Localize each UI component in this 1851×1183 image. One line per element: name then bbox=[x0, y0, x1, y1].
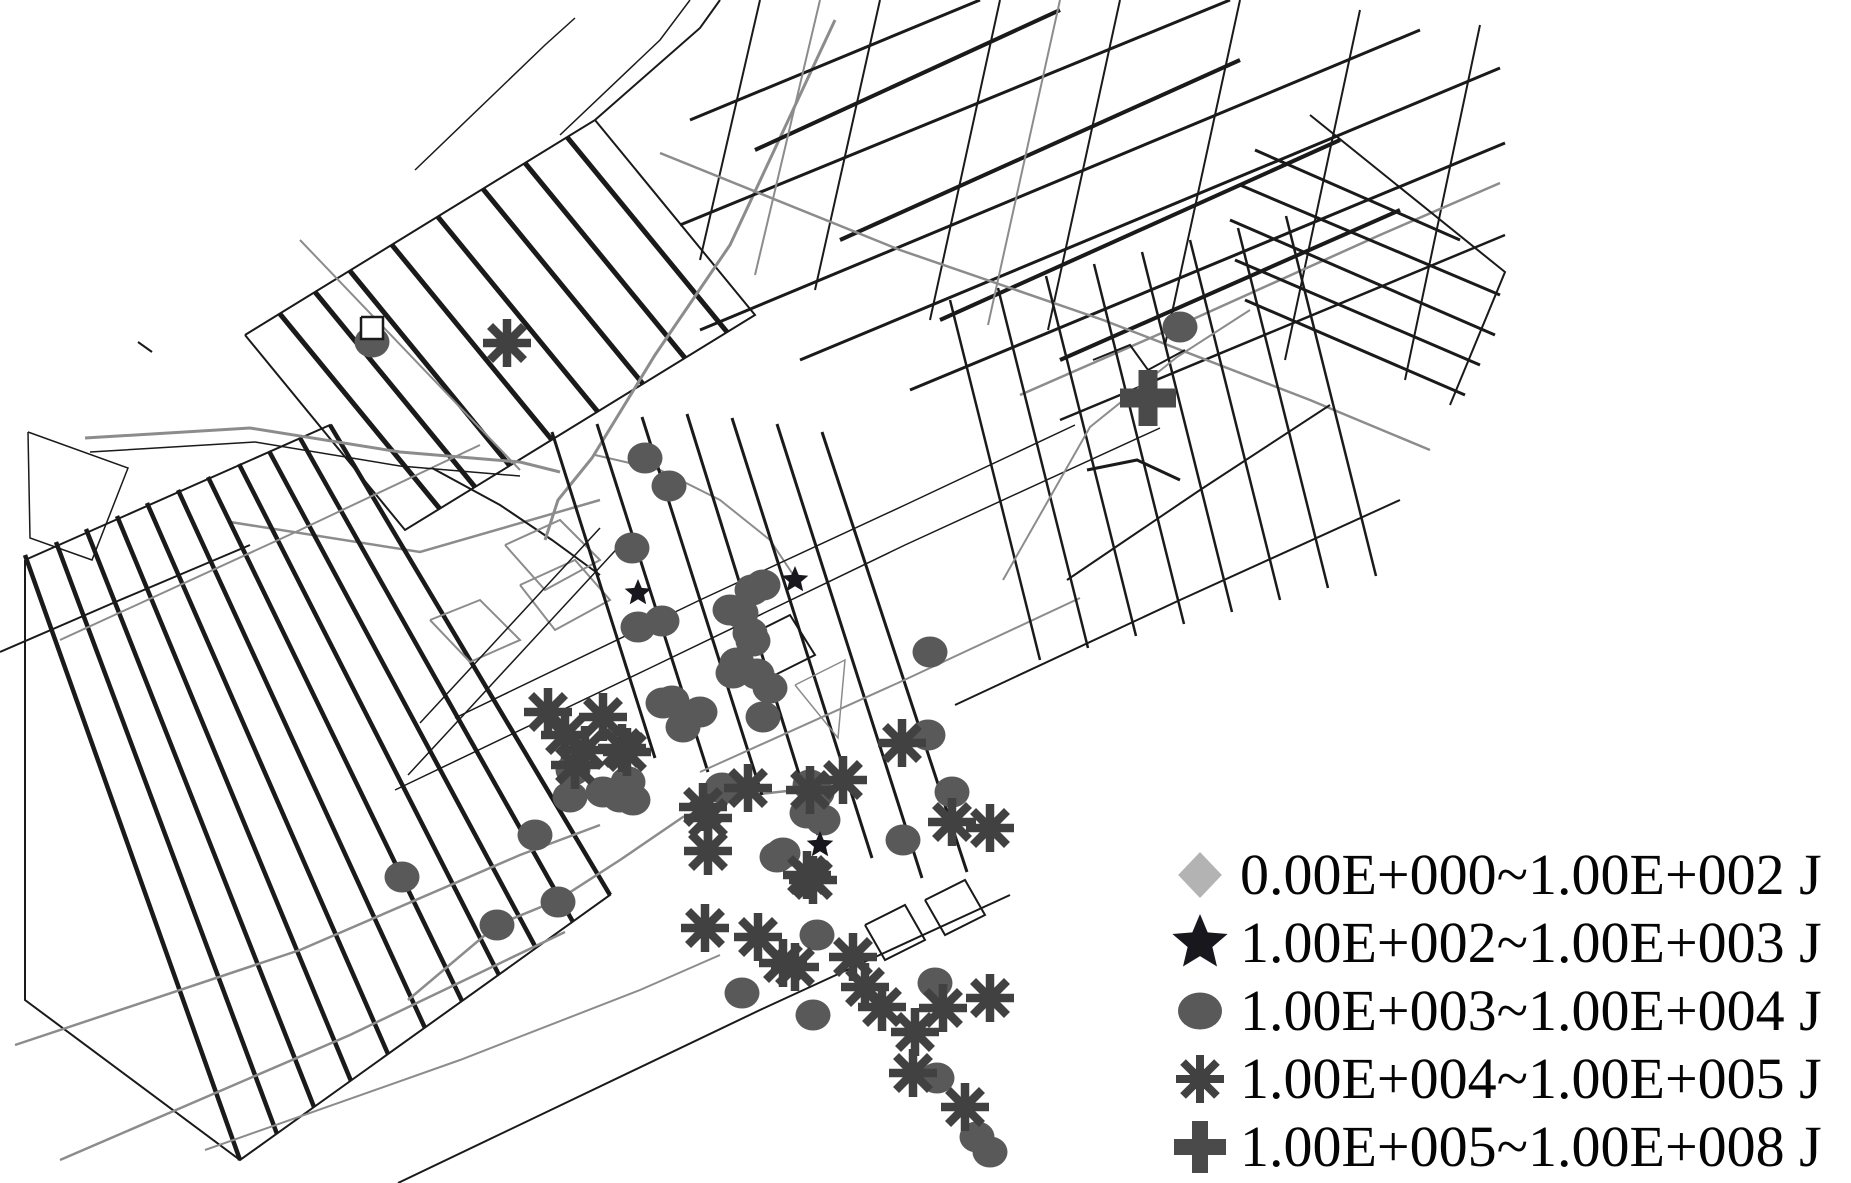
legend-label: 0.00E+000~1.00E+002 J bbox=[1240, 841, 1822, 909]
event-markers bbox=[355, 312, 1198, 1168]
diamond-icon bbox=[1166, 841, 1234, 909]
legend-item-100-1000J: 1.00E+002~1.00E+003 J bbox=[1166, 909, 1822, 977]
circle-icon bbox=[1166, 977, 1234, 1045]
legend: 0.00E+000~1.00E+002 J 1.00E+002~1.00E+00… bbox=[1166, 841, 1822, 1181]
legend-label: 1.00E+003~1.00E+004 J bbox=[1240, 977, 1822, 1045]
legend-label: 1.00E+005~1.00E+008 J bbox=[1240, 1113, 1822, 1181]
legend-item-100000-100000000J: 1.00E+005~1.00E+008 J bbox=[1166, 1113, 1822, 1181]
star-icon bbox=[1166, 909, 1234, 977]
map-overlay-shapes bbox=[361, 317, 383, 339]
legend-label: 1.00E+004~1.00E+005 J bbox=[1240, 1045, 1822, 1113]
legend-item-10000-100000J: 1.00E+004~1.00E+005 J bbox=[1166, 1045, 1822, 1113]
legend-label: 1.00E+002~1.00E+003 J bbox=[1240, 909, 1822, 977]
asterisk-icon bbox=[1166, 1045, 1234, 1113]
plus-icon bbox=[1166, 1113, 1234, 1181]
figure-canvas: 0.00E+000~1.00E+002 J 1.00E+002~1.00E+00… bbox=[0, 0, 1851, 1183]
legend-item-0-100J: 0.00E+000~1.00E+002 J bbox=[1166, 841, 1822, 909]
legend-item-1000-10000J: 1.00E+003~1.00E+004 J bbox=[1166, 977, 1822, 1045]
